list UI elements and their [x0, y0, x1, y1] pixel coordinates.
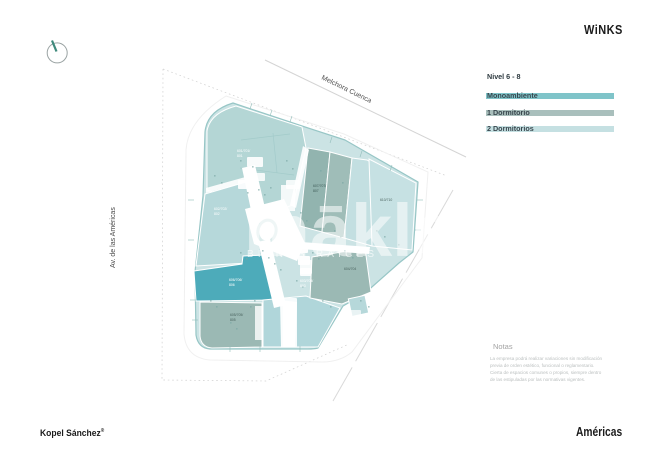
svg-text:803: 803 [300, 284, 306, 288]
svg-text:Av. de las Américas: Av. de las Américas [110, 207, 117, 268]
svg-text:Melchora Cuenca: Melchora Cuenca [320, 75, 372, 105]
svg-text:607/707/: 607/707/ [313, 184, 326, 188]
svg-text:602/702/: 602/702/ [214, 207, 227, 211]
svg-text:806: 806 [229, 283, 235, 287]
svg-text:802: 802 [214, 212, 220, 216]
svg-text:606/706/: 606/706/ [229, 278, 242, 282]
svg-text:601/701/: 601/701/ [237, 149, 250, 153]
svg-text:801: 801 [237, 154, 243, 158]
svg-text:605/705/: 605/705/ [230, 313, 243, 317]
svg-text:805: 805 [230, 318, 236, 322]
svg-text:BIENES RAÍCES: BIENES RAÍCES [247, 247, 378, 260]
svg-text:603/703/: 603/703/ [300, 279, 313, 283]
